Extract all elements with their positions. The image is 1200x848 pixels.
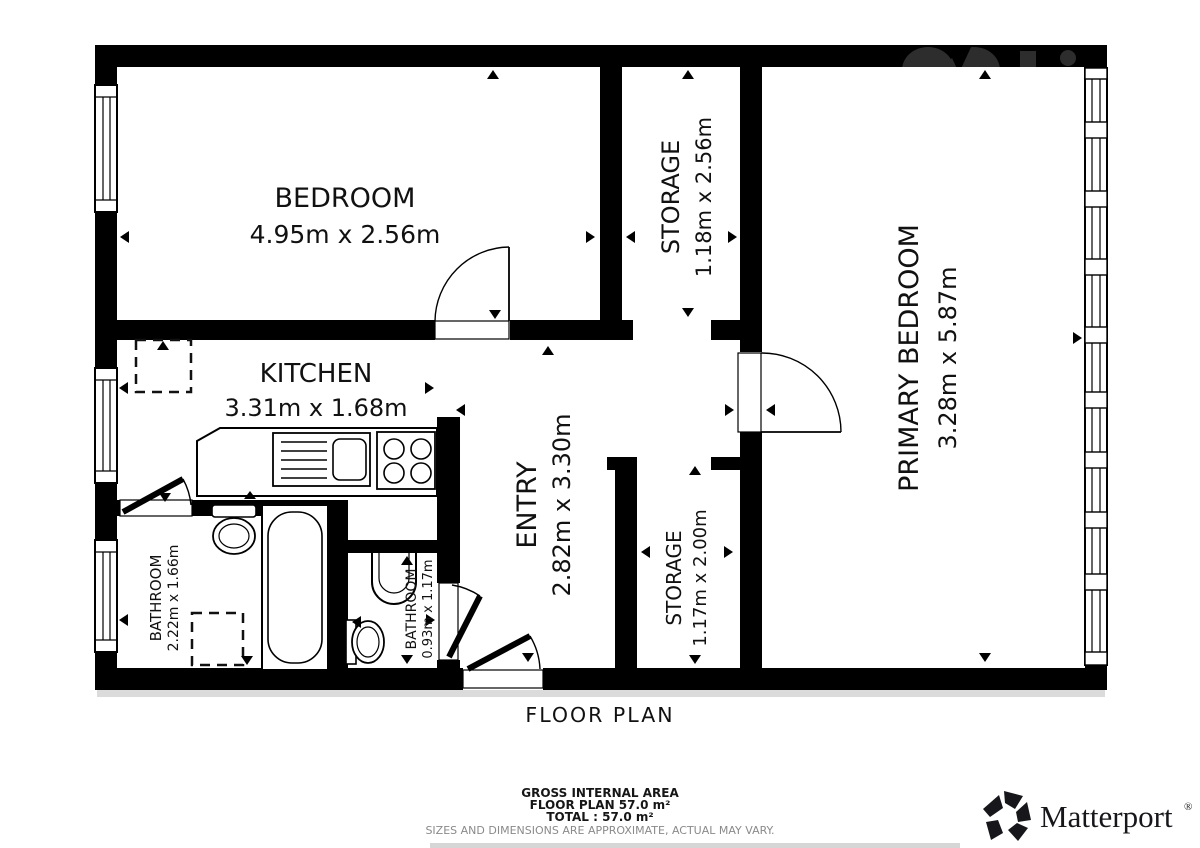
wall-segment xyxy=(1085,45,1107,70)
wall-segment xyxy=(348,540,460,553)
room-dims: 3.28m x 5.87m xyxy=(934,266,962,449)
registered-mark: ® xyxy=(1184,801,1192,813)
matterport-logo-icon xyxy=(983,791,1031,841)
room-name: ENTRY xyxy=(512,461,543,549)
room-dims: 2.82m x 3.30m xyxy=(548,413,576,596)
room-name: BATHROOM xyxy=(404,568,420,649)
matterport-logo: Matterport ® xyxy=(983,791,1192,841)
wall-segment xyxy=(740,432,762,690)
sink-icon xyxy=(333,439,366,480)
page-edge-strip xyxy=(430,843,960,848)
floor-plan-canvas: BEDROOM 4.95m x 2.56m STORAGE 1.18m x 2.… xyxy=(0,0,1200,848)
wall-segment xyxy=(437,417,460,583)
disclaimer-text: SIZES AND DIMENSIONS ARE APPROXIMATE, AC… xyxy=(425,824,774,837)
wall-segment xyxy=(607,457,637,470)
floor-plan-page: BEDROOM 4.95m x 2.56m STORAGE 1.18m x 2.… xyxy=(0,0,1200,848)
wall-segment xyxy=(740,45,762,352)
room-name: BATHROOM xyxy=(147,555,165,642)
label-bathroom: BATHROOM 2.22m x 1.66m xyxy=(147,545,182,652)
room-name: KITCHEN xyxy=(260,359,373,389)
room-dims: 1.18m x 2.56m xyxy=(692,117,716,277)
toilet-small-icon xyxy=(346,620,384,664)
stove-icon xyxy=(377,432,435,489)
wall-segment xyxy=(95,668,463,690)
toilet-icon xyxy=(212,505,256,554)
plan-shadow xyxy=(97,690,1105,697)
room-dims: 4.95m x 2.56m xyxy=(250,220,441,249)
wall-segment xyxy=(600,45,622,320)
room-name: BEDROOM xyxy=(275,183,416,214)
matterport-wordmark: Matterport xyxy=(1040,799,1173,834)
room-name: STORAGE xyxy=(657,140,685,254)
page-title: FLOOR PLAN xyxy=(525,703,674,727)
bathtub-icon xyxy=(262,505,328,670)
window-bedroom xyxy=(95,85,117,212)
area-summary: GROSS INTERNAL AREA FLOOR PLAN 57.0 m² T… xyxy=(425,786,774,837)
room-dims: 0.93m x 1.17m xyxy=(421,559,436,658)
wall-segment xyxy=(615,457,637,690)
wall-segment xyxy=(437,660,460,690)
wall-segment xyxy=(95,320,435,340)
room-name: STORAGE xyxy=(662,530,686,625)
wall-segment xyxy=(95,212,117,368)
wall-segment xyxy=(95,45,117,85)
window-primary-bedroom xyxy=(1085,68,1107,665)
wall-segment xyxy=(510,320,633,340)
wall-segment xyxy=(328,505,348,690)
room-name: PRIMARY BEDROOM xyxy=(894,224,925,492)
window-kitchen xyxy=(95,368,117,483)
room-dims: 3.31m x 1.68m xyxy=(224,394,407,422)
total-area-value: TOTAL : 57.0 m² xyxy=(546,810,653,824)
wall-segment xyxy=(711,457,742,470)
window-bathroom xyxy=(95,540,117,652)
room-dims: 1.17m x 2.00m xyxy=(690,509,711,646)
room-dims: 2.22m x 1.66m xyxy=(166,545,182,652)
wall-segment xyxy=(95,500,120,516)
